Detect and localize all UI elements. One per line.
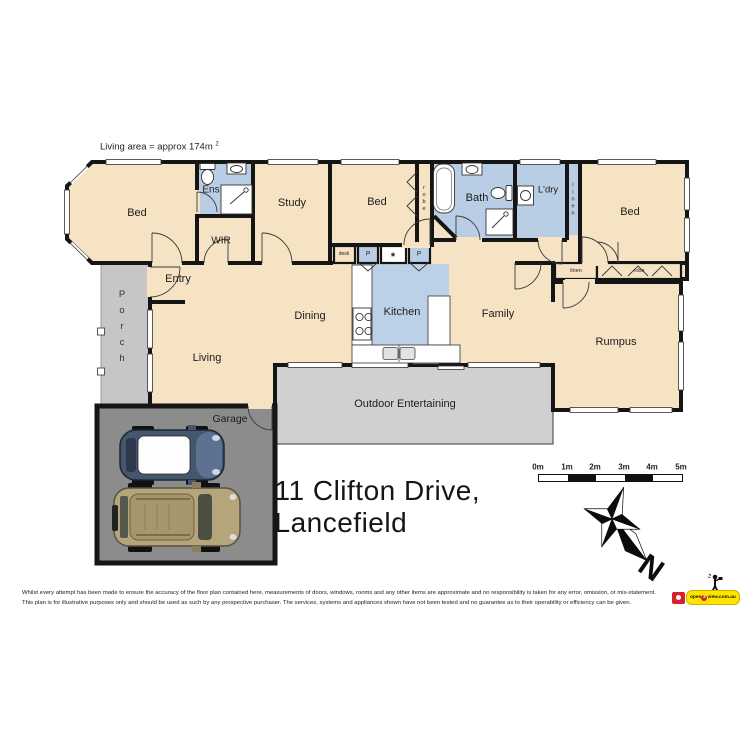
garage-door-opening	[248, 403, 272, 409]
floorplan-svg	[0, 0, 750, 750]
disclaimer-line-1: Whilst every attempt has been made to en…	[22, 589, 670, 599]
logo-pill: open 2 view.com.au	[686, 590, 740, 605]
open2view-logo[interactable]: open 2 view.com.au	[672, 573, 734, 613]
living-area-note: Living area = approx 174m 2	[100, 141, 219, 152]
disclaimer: Whilst every attempt has been made to en…	[22, 589, 670, 608]
outdoor-area	[274, 366, 553, 444]
logo-text-prefix: open	[690, 595, 701, 600]
living-area-text: Living area = approx 174m	[100, 142, 213, 153]
logo-red-square	[672, 592, 685, 604]
logo-row: open 2 view.com.au	[672, 590, 740, 605]
scale-tick-4m: 4m	[646, 463, 658, 472]
porch-area	[101, 263, 150, 406]
scale-tick-0m: 0m	[532, 463, 544, 472]
scale-tick-5m: 5m	[675, 463, 687, 472]
car-hatchback	[120, 425, 224, 485]
scale-tick-1m: 1m	[561, 463, 573, 472]
living-area-superscript: 2	[215, 141, 218, 147]
property-address: 11 Clifton Drive, Lancefield	[275, 475, 592, 539]
scale-tick-3m: 3m	[618, 463, 630, 472]
disclaimer-line-2: This plan is for illustrative purposes o…	[22, 599, 670, 609]
floorplan-page: Living area = approx 174m 2 Bed Ens WIR …	[0, 0, 750, 750]
logo-text-suffix: view.com.au	[707, 595, 735, 600]
scale-tick-2m: 2m	[589, 463, 601, 472]
scale-bar	[538, 474, 683, 482]
car-suv	[112, 482, 240, 552]
laundry-fixtures	[518, 186, 534, 205]
